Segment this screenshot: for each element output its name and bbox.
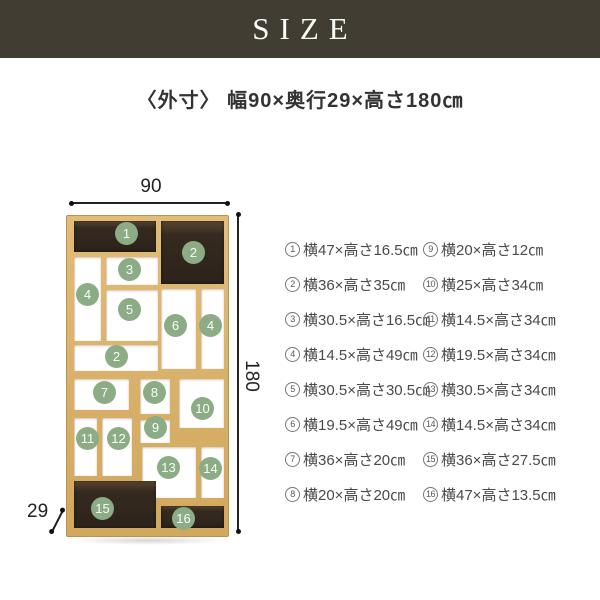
legend-size-text: 横36×高さ27.5㎝ — [441, 449, 556, 470]
compartment-number-badge: 4 — [199, 314, 222, 337]
legend-size-text: 横36×高さ35㎝ — [303, 274, 405, 295]
height-dimension-line — [237, 214, 239, 532]
compartment-number-badge: 2 — [182, 241, 205, 264]
legend-size-text: 横30.5×高さ34㎝ — [441, 379, 556, 400]
legend-item-7: 7横36×高さ20㎝ — [285, 442, 430, 477]
compartment-number-badge: 5 — [118, 298, 141, 321]
shelf-shadow — [70, 536, 226, 545]
banner-title: SIZE — [242, 11, 357, 47]
legend-item-3: 3横30.5×高さ16.5㎝ — [285, 302, 430, 337]
legend-size-text: 横14.5×高さ34㎝ — [441, 414, 556, 435]
compartment-number-badge: 8 — [143, 381, 166, 404]
compartment-number-badge: 11 — [76, 427, 99, 450]
compartment-number-badge: 13 — [157, 456, 180, 479]
compartment-number-badge: 16 — [172, 507, 195, 530]
legend-circled-number: 8 — [285, 487, 300, 502]
legend-circled-number: 4 — [285, 347, 300, 362]
legend-size-text: 横20×高さ20㎝ — [303, 484, 405, 505]
legend-circled-number: 14 — [423, 417, 438, 432]
legend-item-2: 2横36×高さ35㎝ — [285, 267, 430, 302]
legend-circled-number: 3 — [285, 312, 300, 327]
legend-circled-number: 9 — [423, 242, 438, 257]
height-dimension-label: 180 — [241, 354, 261, 398]
legend-circled-number: 6 — [285, 417, 300, 432]
legend-circled-number: 12 — [423, 347, 438, 362]
legend-item-8: 8横20×高さ20㎝ — [285, 477, 430, 512]
legend-item-15: 15横36×高さ27.5㎝ — [423, 442, 556, 477]
legend-item-9: 9横20×高さ12㎝ — [423, 232, 556, 267]
shelf-illustration: 1 2 3 4 5 6 4 2 7 8 9 10 11 12 13 14 15 … — [66, 215, 229, 537]
legend-item-5: 5横30.5×高さ30.5㎝ — [285, 372, 430, 407]
legend-circled-number: 13 — [423, 382, 438, 397]
compartment-number-badge: 10 — [191, 397, 214, 420]
compartment-number-badge: 7 — [93, 381, 116, 404]
legend-item-13: 13横30.5×高さ34㎝ — [423, 372, 556, 407]
size-legend-column-2: 9横20×高さ12㎝ 10横25×高さ34㎝ 11横14.5×高さ34㎝ 12横… — [423, 232, 556, 512]
compartment-number-badge: 2 — [105, 345, 128, 368]
compartment-number-badge: 4 — [76, 283, 99, 306]
compartment-number-badge: 15 — [91, 497, 114, 520]
legend-item-6: 6横19.5×高さ49㎝ — [285, 407, 430, 442]
legend-item-14: 14横14.5×高さ34㎝ — [423, 407, 556, 442]
legend-size-text: 横14.5×高さ49㎝ — [303, 344, 418, 365]
size-legend-column-1: 1横47×高さ16.5㎝ 2横36×高さ35㎝ 3横30.5×高さ16.5㎝ 4… — [285, 232, 430, 512]
legend-size-text: 横30.5×高さ30.5㎝ — [303, 379, 430, 400]
legend-item-12: 12横19.5×高さ34㎝ — [423, 337, 556, 372]
legend-circled-number: 10 — [423, 277, 438, 292]
legend-item-16: 16横47×高さ13.5㎝ — [423, 477, 556, 512]
legend-circled-number: 15 — [423, 452, 438, 467]
depth-dimension-label: 29 — [27, 502, 48, 521]
legend-size-text: 横20×高さ12㎝ — [441, 239, 543, 260]
compartment-number-badge: 14 — [199, 457, 222, 480]
legend-size-text: 横47×高さ16.5㎝ — [303, 239, 418, 260]
legend-circled-number: 11 — [423, 312, 438, 327]
legend-size-text: 横19.5×高さ34㎝ — [441, 344, 556, 365]
legend-item-4: 4横14.5×高さ49㎝ — [285, 337, 430, 372]
legend-size-text: 横25×高さ34㎝ — [441, 274, 543, 295]
legend-item-11: 11横14.5×高さ34㎝ — [423, 302, 556, 337]
legend-circled-number: 5 — [285, 382, 300, 397]
compartment-number-badge: 9 — [144, 416, 167, 439]
compartment-number-badge: 3 — [118, 258, 141, 281]
legend-size-text: 横36×高さ20㎝ — [303, 449, 405, 470]
size-banner: SIZE — [0, 0, 600, 58]
legend-size-text: 横47×高さ13.5㎝ — [441, 484, 556, 505]
compartment-number-badge: 6 — [164, 314, 187, 337]
legend-size-text: 横30.5×高さ16.5㎝ — [303, 309, 430, 330]
legend-circled-number: 2 — [285, 277, 300, 292]
depth-dimension-line — [51, 509, 64, 532]
legend-circled-number: 7 — [285, 452, 300, 467]
legend-item-10: 10横25×高さ34㎝ — [423, 267, 556, 302]
width-dimension-line — [71, 202, 228, 204]
width-dimension-label: 90 — [121, 177, 181, 196]
legend-size-text: 横14.5×高さ34㎝ — [441, 309, 556, 330]
legend-item-1: 1横47×高さ16.5㎝ — [285, 232, 430, 267]
legend-size-text: 横19.5×高さ49㎝ — [303, 414, 418, 435]
compartment-15 — [74, 481, 156, 528]
legend-circled-number: 1 — [285, 242, 300, 257]
compartment-number-badge: 12 — [107, 427, 130, 450]
legend-circled-number: 16 — [423, 487, 438, 502]
outer-dimensions-subtitle: 〈外寸〉 幅90×奥行29×高さ180㎝ — [0, 84, 600, 113]
compartment-number-badge: 1 — [115, 222, 138, 245]
